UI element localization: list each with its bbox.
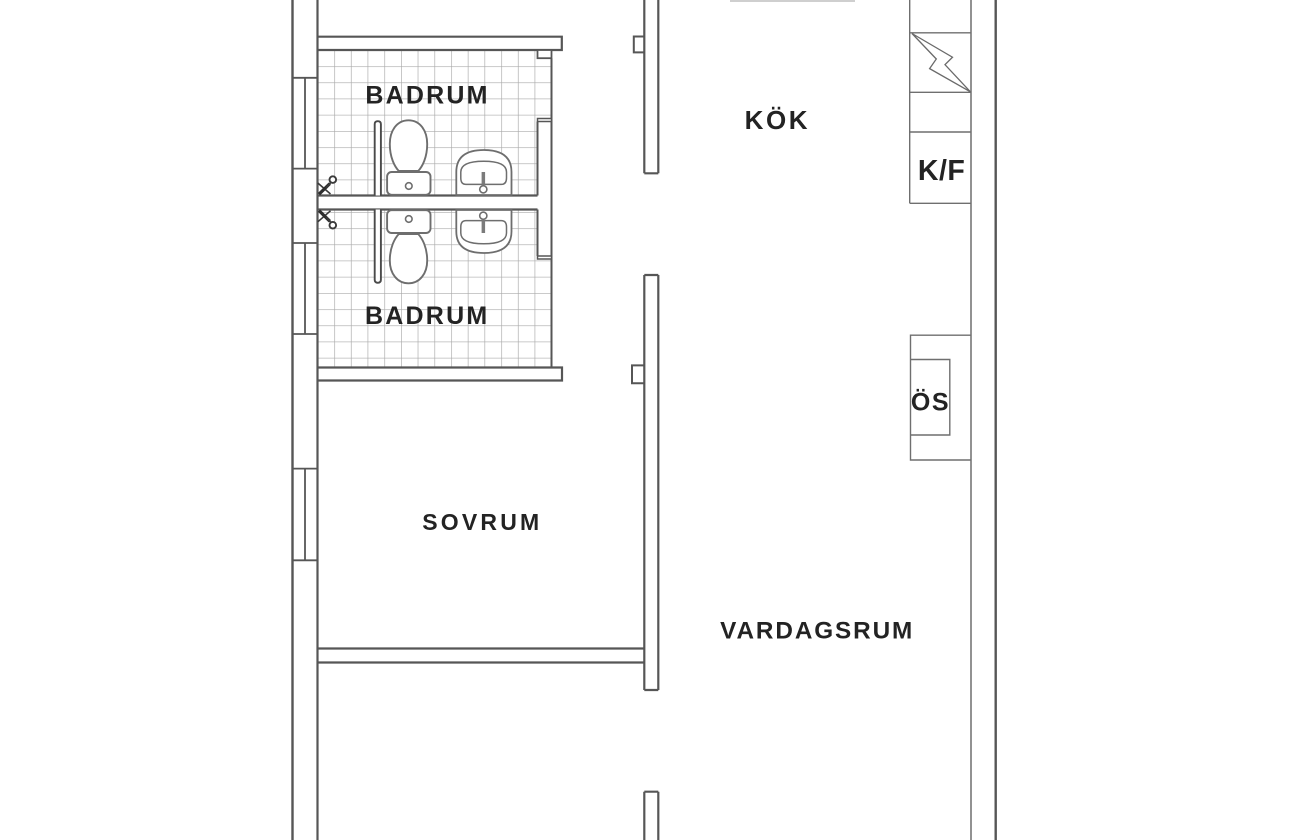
svg-text:KÖK: KÖK: [745, 105, 811, 135]
svg-text:ÖS: ÖS: [911, 388, 950, 417]
svg-text:SOVRUM: SOVRUM: [422, 509, 542, 535]
svg-text:BADRUM: BADRUM: [365, 82, 489, 110]
svg-text:VARDAGSRUM: VARDAGSRUM: [720, 617, 914, 644]
svg-text:BADRUM: BADRUM: [365, 302, 489, 330]
svg-text:K/F: K/F: [918, 155, 965, 187]
